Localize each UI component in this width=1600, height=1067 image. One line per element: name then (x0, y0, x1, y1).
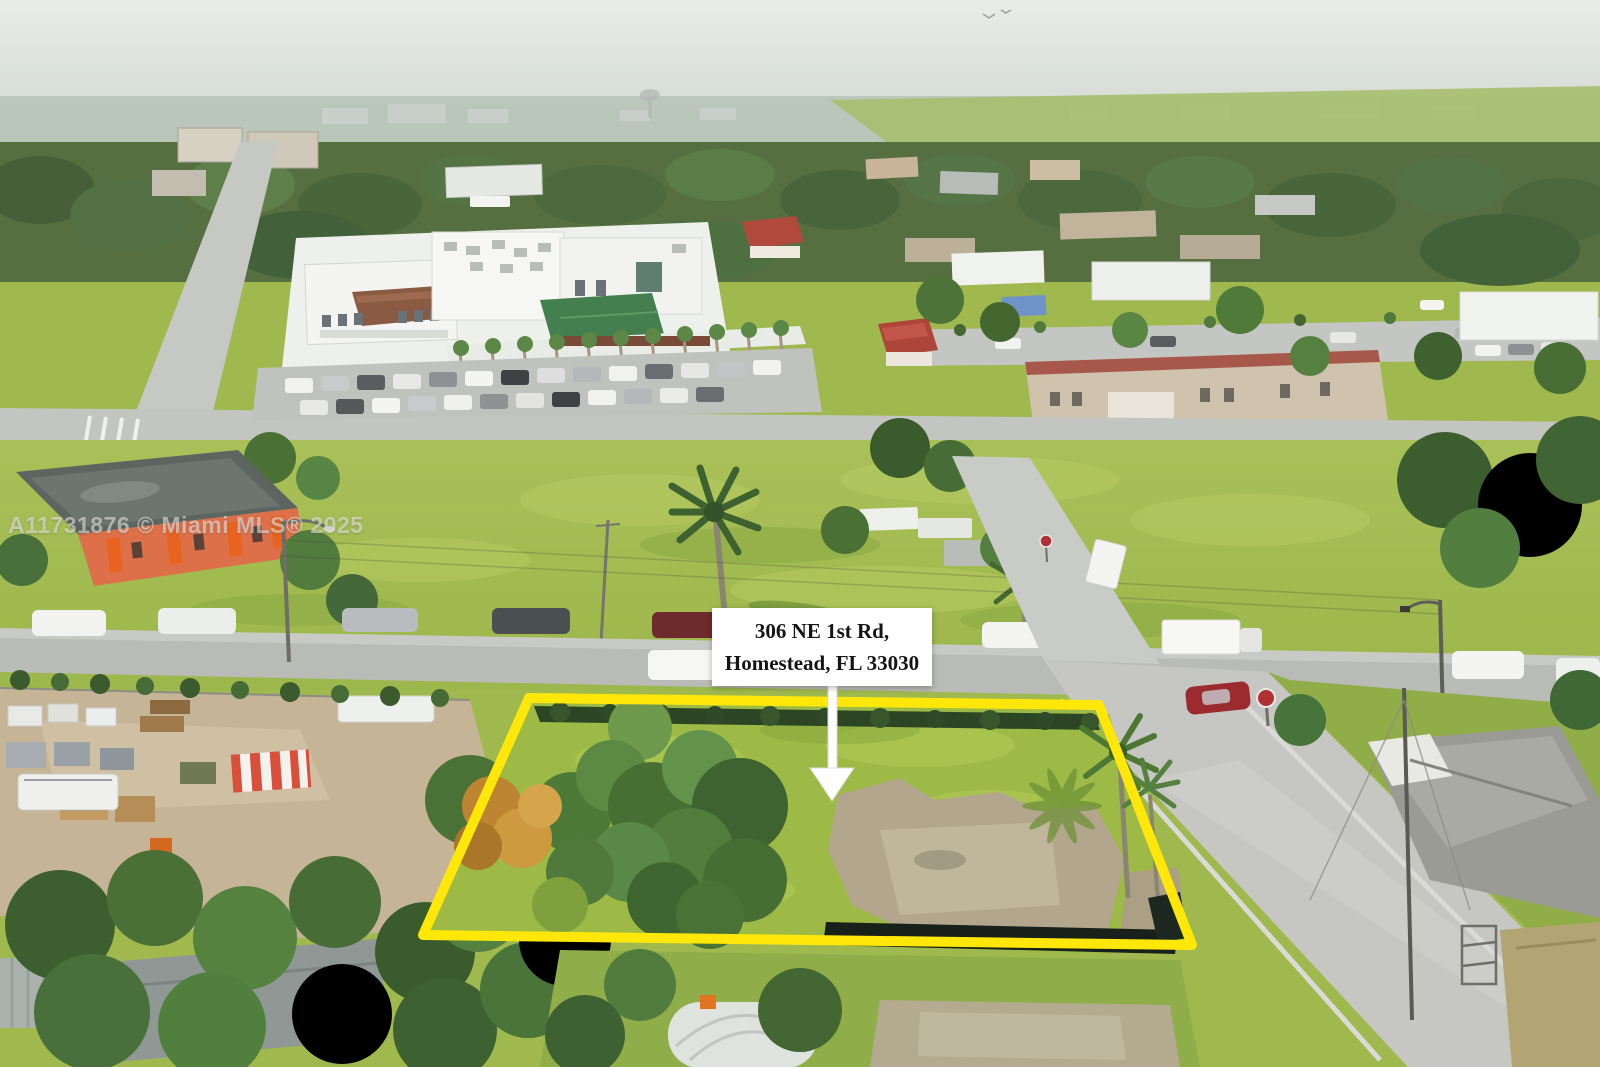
bottom-center (540, 949, 1200, 1067)
arrow-down-icon (800, 684, 864, 804)
red-roof-house (878, 318, 938, 366)
tree (1274, 694, 1326, 746)
address-label: 306 NE 1st Rd, Homestead, FL 33030 (712, 608, 932, 686)
tree (758, 968, 842, 1052)
white-building (951, 250, 1044, 285)
mls-watermark: A11731876 © Miami MLS® 2025 (8, 512, 364, 539)
tree (280, 530, 340, 590)
address-line1: 306 NE 1st Rd, (755, 615, 889, 647)
white-pickup (1452, 651, 1524, 679)
aerial-photo: A11731876 © Miami MLS® 2025 306 NE 1st R… (0, 0, 1600, 1067)
orange-marker (700, 995, 716, 1009)
striped-canopy (231, 749, 311, 792)
white-storage-building (1092, 262, 1210, 300)
address-line2: Homestead, FL 33030 (725, 647, 919, 679)
red-roof-house-small (742, 216, 804, 258)
far-right-white-building (1460, 292, 1598, 340)
